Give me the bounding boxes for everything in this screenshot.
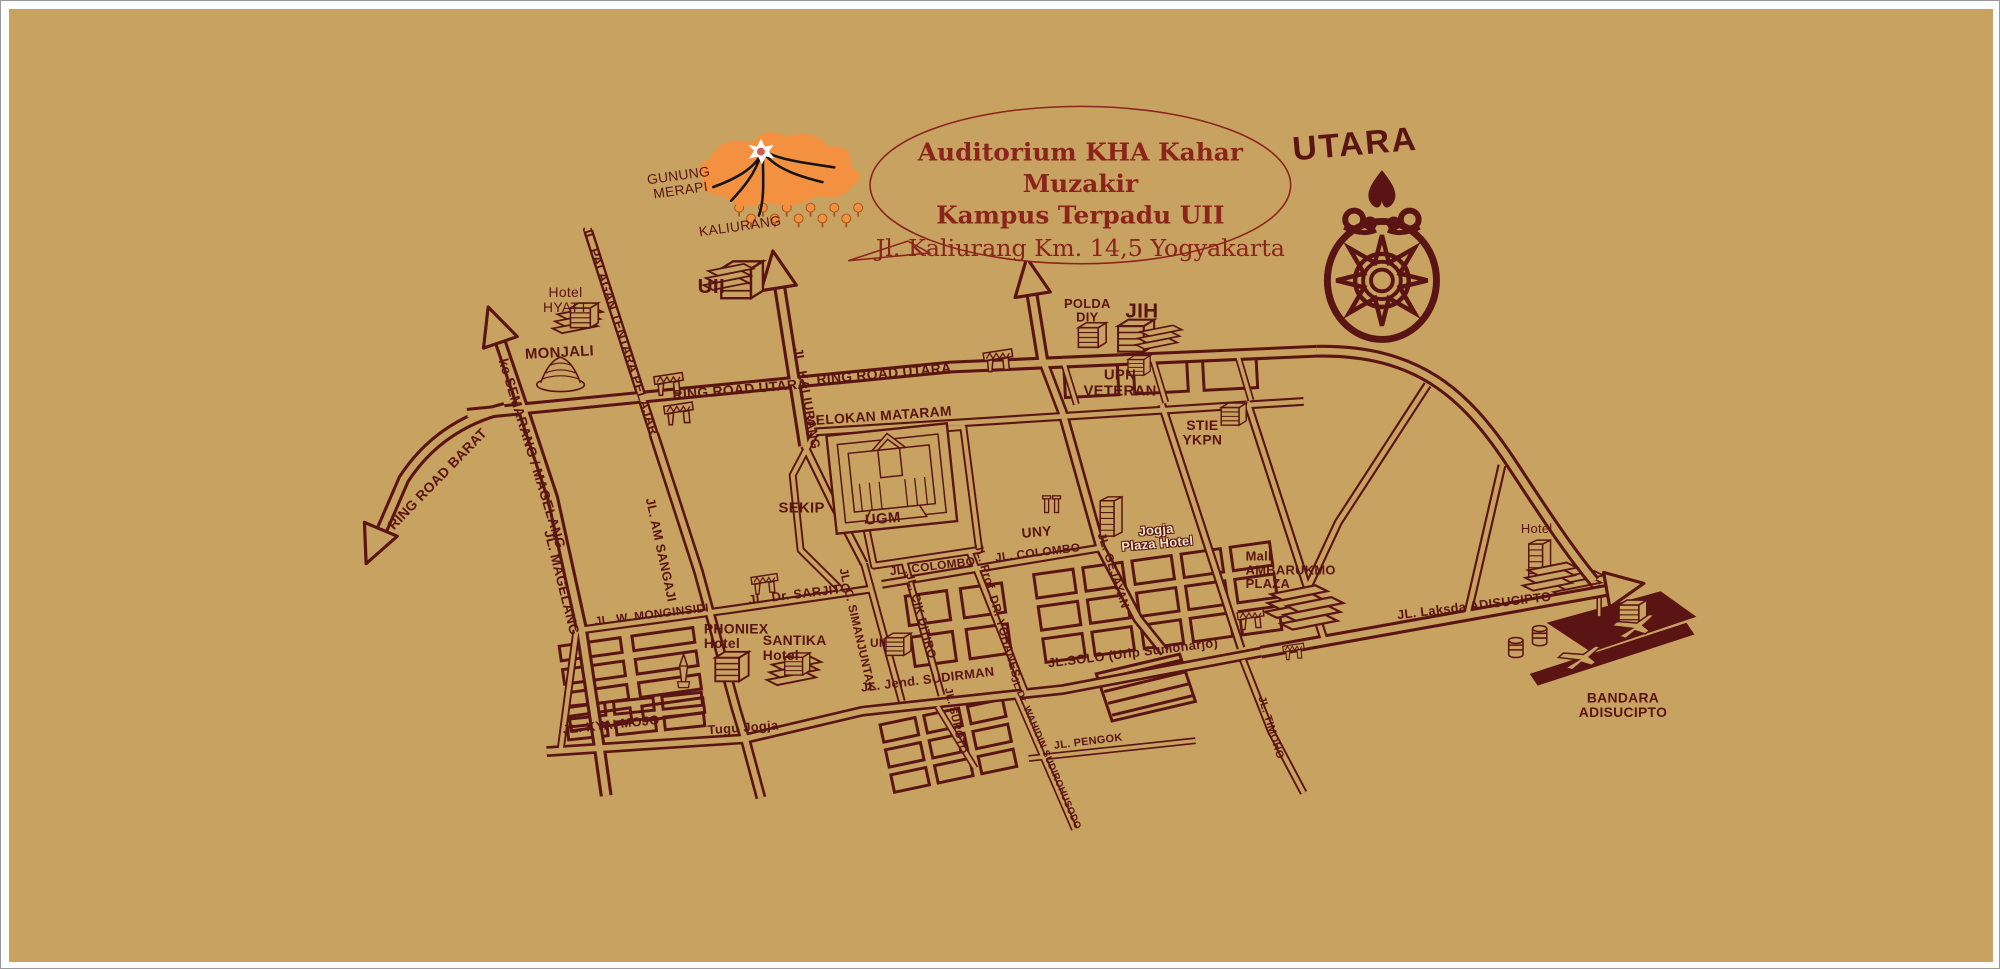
gate-icon (664, 402, 693, 425)
map-frame: GUNUNG MERAPIKALIURANGUIIHotel HYATTMONJ… (0, 0, 2000, 969)
map-label-hotel-east: Hotel (1521, 522, 1553, 536)
jogja-plaza-hotel-building-icon (1100, 497, 1122, 536)
uny-gate-icon (1043, 496, 1061, 513)
city-block (635, 651, 698, 674)
road-path (1316, 351, 1594, 581)
city-block (1034, 569, 1077, 598)
tree-icon (818, 214, 827, 227)
map-label-uii-north: UII (698, 276, 726, 298)
road-path (1467, 465, 1502, 615)
city-block (1136, 588, 1179, 617)
city-block (885, 743, 924, 768)
map-label-upn-veteran: UPN VETERAN (1083, 368, 1156, 400)
city-block (880, 717, 919, 742)
city-block (934, 758, 973, 783)
gate-icon (1237, 609, 1264, 630)
city-block (978, 749, 1017, 774)
tree-icon (794, 214, 803, 227)
yogyakarta-location-map: GUNUNG MERAPIKALIURANGUIIHotel HYATTMONJ… (9, 9, 1993, 962)
road-path (1316, 351, 1594, 581)
map-label-hotel-hyatt: Hotel HYATT (543, 285, 588, 315)
map-label-stie-ykpn: STIE YKPN (1182, 418, 1222, 448)
city-block (891, 768, 930, 793)
stie-ykpn-building-icon (1221, 403, 1246, 425)
polda-diy-building-icon (1078, 323, 1106, 348)
map-label-santika-hotel: SANTIKA Hotel (763, 633, 827, 663)
balloon-address-line: Jl. Kaliurang Km. 14,5 Yogyakarta (870, 234, 1291, 262)
city-block (973, 724, 1012, 749)
tree-icon (842, 214, 851, 227)
map-label-uii-south: UII (870, 637, 886, 650)
tugu-jogja-monument-icon (678, 654, 690, 687)
compass-rose-icon (1327, 170, 1436, 339)
callout-balloon: Auditorium KHA Kahar Muzakir Kampus Terp… (870, 137, 1291, 262)
phoniex-hotel-building-icon (715, 652, 748, 682)
map-label-bandara-adisucipto: BANDARA ADISUCIPTO (1579, 690, 1667, 720)
map-label-polda-diy: POLDA DIY (1064, 297, 1111, 325)
map-label-phoniex-hotel: PHONIEX Hotel (704, 622, 769, 652)
tree-icon (830, 203, 839, 216)
monjali-monument-icon (537, 357, 585, 391)
map-label-sekip: SEKIP (779, 501, 825, 517)
city-block (632, 628, 695, 651)
map-label-jih: JIH (1125, 301, 1158, 323)
city-block (664, 713, 705, 730)
map-label-mall-ambarukmo-plaza: Mall AMBARUKMO PLAZA (1246, 550, 1336, 591)
tree-icon (854, 203, 863, 216)
balloon-title-line2: Kampus Terpadu UII (870, 200, 1291, 231)
city-block (1038, 601, 1081, 630)
map-label-uny: UNY (1021, 524, 1052, 541)
map-label-ugm: UGM (865, 510, 902, 529)
arrowhead (350, 522, 398, 570)
uii-downtown-building-icon (886, 633, 911, 655)
balloon-title-line1: Auditorium KHA Kahar Muzakir (870, 137, 1291, 200)
tree-icon (806, 203, 815, 216)
city-block (1132, 555, 1175, 584)
arrowhead (471, 301, 517, 348)
